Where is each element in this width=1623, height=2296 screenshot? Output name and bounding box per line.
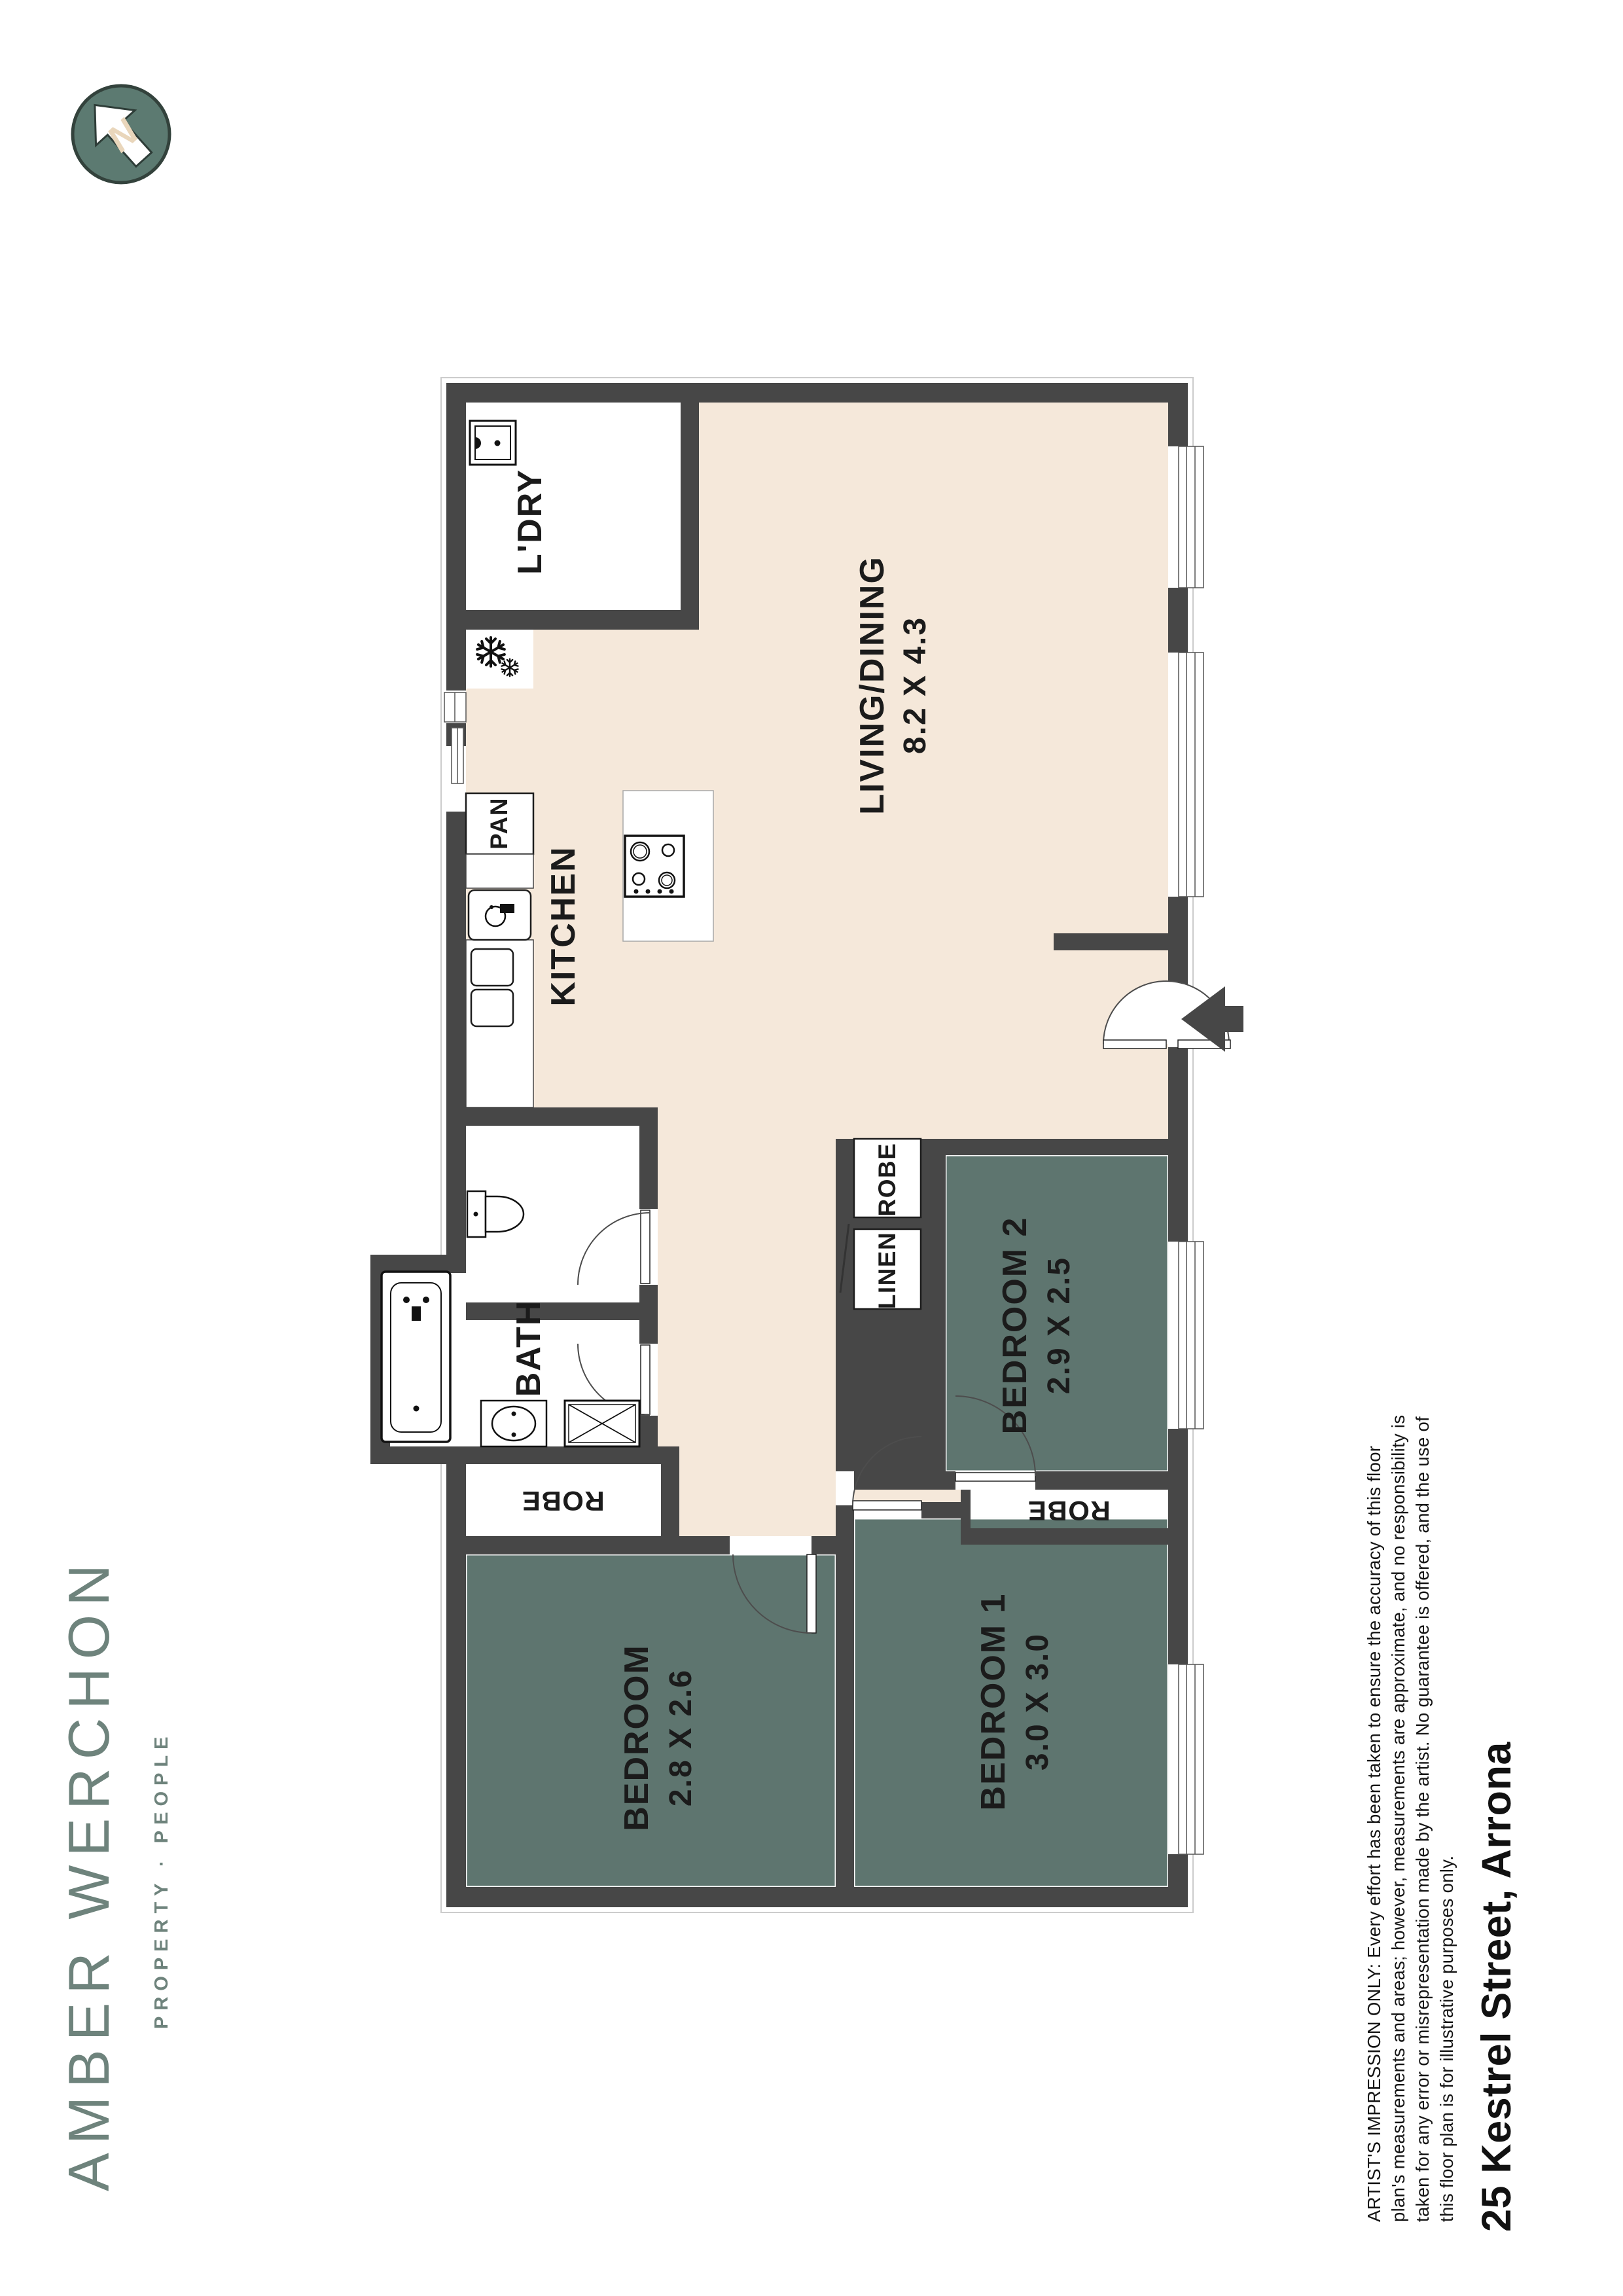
bedroom1-dims: 3.0 X 3.0 — [1020, 1633, 1055, 1770]
shower — [565, 1401, 639, 1446]
brand-name: AMBER WERCHON — [58, 1556, 121, 2191]
robe-bedroom2-label: ROBE — [874, 1143, 901, 1217]
window-bedroom1 — [1179, 1664, 1204, 1854]
linen-label: LINEN — [874, 1232, 901, 1310]
living-dims: 8.2 X 4.3 — [898, 617, 933, 754]
cooktop — [625, 836, 684, 897]
window-kitchen-b — [452, 728, 463, 783]
window-bedroom2 — [1179, 1242, 1204, 1429]
robe-bedroom-label: ROBE — [521, 1486, 604, 1516]
bedroom-label: BEDROOM — [618, 1644, 656, 1831]
robe-bedroom1-label: ROBE — [1027, 1496, 1110, 1526]
window-kitchen-a — [444, 692, 466, 722]
disclaimer-line: this floor plan is for illustrative purp… — [1437, 1856, 1457, 2222]
disclaimer-line: ARTIST'S IMPRESSION ONLY: Every effort h… — [1364, 1446, 1384, 2222]
bedroom2-dims: 2.9 X 2.5 — [1042, 1257, 1077, 1394]
north-compass: N — [62, 75, 180, 193]
vanity-sink — [481, 1401, 546, 1446]
bedroom1-label: BEDROOM 1 — [974, 1593, 1012, 1811]
laundry-tub — [470, 421, 516, 465]
bedroom2-label: BEDROOM 2 — [996, 1217, 1034, 1435]
bedroom-dims: 2.8 X 2.6 — [664, 1669, 698, 1806]
bath-label: BATH — [510, 1300, 548, 1397]
bench-upper — [466, 854, 533, 888]
living-label: LIVING/DINING — [853, 556, 891, 815]
property-address: 25 Kestrel Street, Arrona — [1474, 1742, 1520, 2232]
disclaimer-line: taken for any error or misrepresentation… — [1413, 1416, 1433, 2222]
window-living-1 — [1179, 446, 1204, 588]
kitchen-sink — [469, 890, 531, 940]
brand-tagline: PROPERTY · PEOPLE — [152, 1731, 173, 2029]
window-living-2 — [1179, 653, 1204, 897]
living-wall-stub — [1054, 933, 1168, 950]
pantry-label: PAN — [486, 797, 512, 850]
floor-plan-page: N — [0, 0, 1623, 2296]
laundry-label: L'DRY — [511, 469, 549, 575]
kitchen-label: KITCHEN — [544, 846, 582, 1006]
floor-plan: L'DRY LIVING/DINING 8.2 X 4.3 KITCHEN PA… — [327, 353, 1243, 1957]
disclaimer-line: plan's measurements and areas; however, … — [1389, 1415, 1408, 2222]
island-bench — [623, 791, 713, 941]
bathtub — [382, 1272, 450, 1442]
